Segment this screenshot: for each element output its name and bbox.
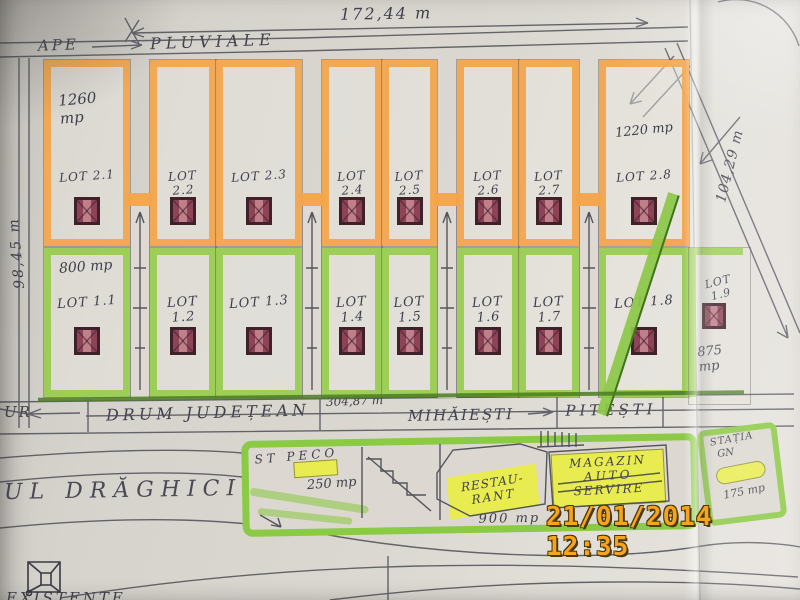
existing-building-icon	[397, 327, 423, 355]
lot-area: 875 mp	[697, 341, 745, 376]
bus-station-area: 175 mp	[722, 481, 766, 502]
timestamp-time: 12:35	[546, 532, 629, 562]
existing-building-icon	[536, 197, 562, 225]
lot-label: LOT 2.7	[525, 167, 573, 198]
lot-area: 1260 mp	[58, 86, 125, 127]
existing-building-icon	[170, 197, 196, 225]
existing-building-icon	[475, 327, 501, 355]
shop-area: 900 mp	[478, 511, 540, 527]
lot-2-2: LOT 2.2	[150, 60, 216, 246]
plot-map-photo: 172,44 m APE PLUVIALE 98,45 m 104,29 m 1…	[0, 0, 800, 600]
right-side-measurement: 104,29 m	[709, 111, 751, 222]
drainage-pluviale-label: PLUVIALE	[150, 30, 276, 53]
lot-1-1: 800 mp LOT 1.1	[44, 248, 130, 397]
lot-label: LOT 1.2	[156, 293, 210, 327]
timestamp-date: 21/01/2014	[546, 502, 713, 532]
lot-label: LOT 1.4	[328, 293, 376, 326]
road-name-label: DRUM JUDEȚEAN	[98, 400, 318, 425]
road-direction-mihaiesti: MIHĂIEȘTI	[396, 405, 526, 425]
lot-area: 800 mp	[59, 257, 113, 277]
lot-2-6: LOT 2.6	[457, 60, 519, 246]
river-name-label: UL DRĂGHICI	[4, 476, 243, 505]
existing-building-icon	[397, 197, 423, 225]
gas-station-area: 250 mp	[306, 475, 357, 493]
road-fragment-label: UR	[4, 403, 32, 421]
existing-building-icon	[246, 197, 272, 225]
drainage-ape-label: APE	[38, 35, 79, 54]
lot-1-4: LOT 1.4	[322, 248, 382, 397]
existing-building-icon	[170, 327, 196, 355]
existing-building-icon	[536, 327, 562, 355]
lot-1-7: LOT 1.7	[519, 248, 579, 397]
lot-1-3: LOT 1.3	[216, 248, 302, 397]
gas-station-building	[293, 459, 338, 478]
lot-2-7: LOT 2.7	[519, 60, 579, 246]
existing-building-icon	[475, 197, 501, 225]
green-scribble	[257, 508, 352, 525]
lot-label: LOT 2.2	[156, 167, 210, 199]
existing-building-icon	[74, 197, 100, 225]
camera-timestamp: 21/01/201412:35	[546, 502, 800, 562]
top-width-measurement: 172,44 m	[340, 3, 433, 24]
existing-building-icon	[702, 303, 726, 329]
existing-building-icon	[339, 327, 365, 355]
existing-building-icon	[246, 327, 272, 355]
left-side-measurement: 98,45 m	[4, 198, 30, 309]
lot-label: LOT 1.5	[388, 294, 431, 327]
lot-1-9: LOT 1.9 875 mp	[689, 248, 743, 397]
lot-2-4: LOT 2.4	[322, 60, 382, 246]
lot-label: LOT 2.1	[51, 167, 124, 186]
lot-label: LOT 2.3	[223, 167, 296, 186]
driveway-strip	[130, 196, 150, 398]
lot-2-1: 1260 mp LOT 2.1	[44, 60, 130, 246]
existing-building-icon	[631, 197, 657, 225]
lot-label: LOT 1.1	[51, 293, 124, 313]
driveway-strip	[579, 196, 599, 398]
lot-1-2: LOT 1.2	[150, 248, 216, 397]
driveway-strip	[302, 196, 322, 398]
shop-building: MAGAZIN AUTO SERVIRE	[551, 449, 667, 509]
bus-station-sublabel: GN	[717, 447, 735, 460]
lot-label: LOT 2.5	[388, 168, 431, 199]
legend-existing-label: EXISTENTE	[6, 589, 126, 600]
lot-label: LOT 2.4	[328, 167, 376, 198]
lot-label: LOT 1.7	[525, 293, 573, 326]
driveway-strip	[437, 196, 457, 398]
lot-2-8: 1220 mp LOT 2.8	[599, 60, 689, 246]
lot-label: LOT 1.6	[463, 293, 513, 326]
lot-label: LOT 1.9	[694, 270, 746, 307]
existing-building-icon	[74, 327, 100, 355]
lot-label: LOT 2.6	[463, 167, 513, 198]
lot-2-5: LOT 2.5	[382, 60, 437, 246]
lot-label: LOT 1.3	[223, 293, 296, 313]
lot-area: 1220 mp	[605, 119, 682, 142]
lot-1-6: LOT 1.6	[457, 248, 519, 397]
existing-building-icon	[339, 197, 365, 225]
lot-label: LOT 2.8	[606, 166, 683, 185]
lot-2-3: LOT 2.3	[216, 60, 302, 246]
lot-1-5: LOT 1.5	[382, 248, 437, 397]
